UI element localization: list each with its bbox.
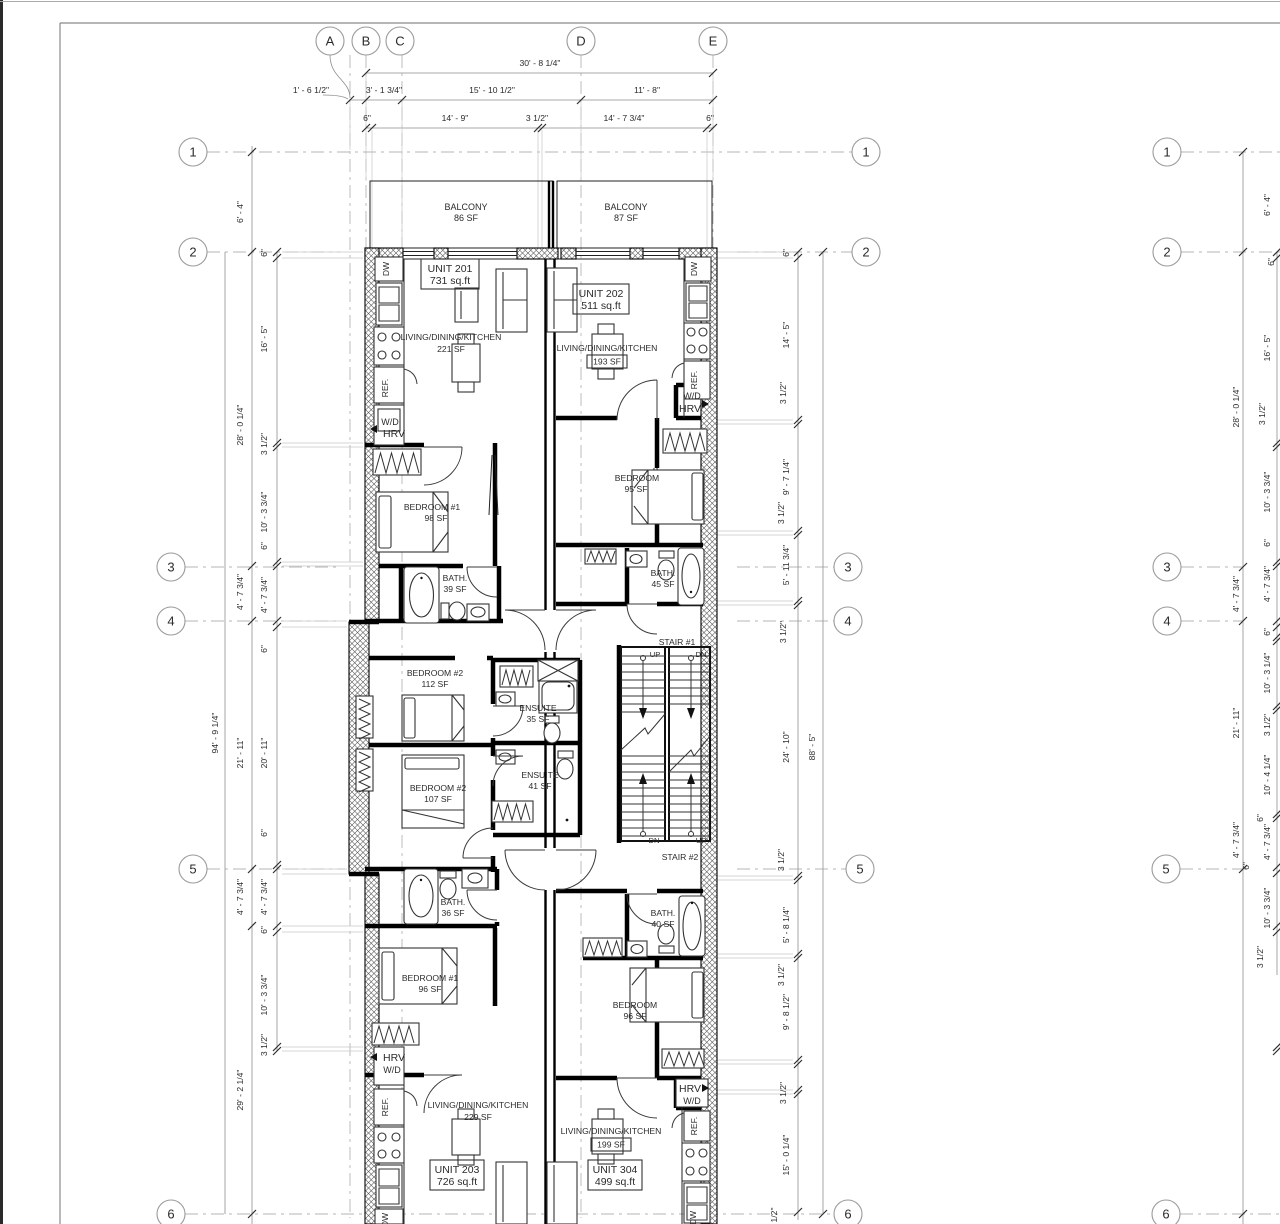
chair	[598, 1154, 614, 1164]
dim-label: 4' - 7 3/4"	[259, 879, 269, 915]
grid-bubble-label: 2	[862, 245, 869, 260]
dim-label: 6"	[259, 926, 269, 934]
balcony-divider-wall	[549, 181, 553, 248]
hrv-label: HRV	[383, 428, 405, 440]
room-area: 39 SF	[444, 584, 467, 594]
dishwasher-label: DW	[381, 261, 391, 276]
unit-area: 511 sq.ft	[581, 300, 621, 312]
dim-label: 3' - 1 3/4"	[366, 85, 402, 95]
dim-label: 20' - 11"	[259, 738, 269, 769]
dim-label: 24' - 10"	[781, 731, 791, 762]
grid-bubble-label: 3	[844, 560, 851, 575]
wall-pier	[434, 248, 448, 259]
room-area: 40 SF	[652, 919, 675, 929]
dishwasher-label: DW	[688, 1210, 698, 1224]
dining-table	[452, 1119, 480, 1155]
toilet-tank	[441, 603, 449, 619]
grid-bubble-label: 1	[189, 145, 196, 160]
room-area: 36 SF	[442, 908, 465, 918]
room-name: BATH.	[441, 897, 466, 907]
room-area: 221 SF	[437, 344, 465, 354]
unit-area: 726 sq.ft	[437, 1176, 477, 1188]
drain	[420, 879, 422, 881]
vanity-sink	[627, 941, 647, 957]
grid-bubble-label: 2	[189, 245, 196, 260]
room-area: 229 SF	[464, 1112, 492, 1122]
unit-name: UNIT 201	[428, 263, 473, 275]
dim-label: 6"	[259, 645, 269, 653]
dimension-labels-top: 30' - 8 1/4" 1' - 6 1/2" 3' - 1 3/4" 15'…	[293, 58, 714, 123]
dim-label: 6"	[706, 113, 714, 123]
dim-label: 6"	[1262, 628, 1272, 636]
room-name: LIVING/DINING/KITCHEN	[557, 343, 658, 353]
room-area: 107 SF	[424, 794, 452, 804]
room-name: LIVING/DINING/KITCHEN	[561, 1126, 662, 1136]
grid-bubble-label: 5	[1162, 862, 1169, 877]
unit-area: 731 sq.ft	[430, 275, 470, 287]
grid-bubble-label: D	[576, 34, 585, 49]
grid-bubble-label: E	[709, 34, 718, 49]
dim-label: 5' - 11 3/4"	[781, 545, 791, 585]
toilet-tank	[440, 871, 456, 878]
dim-label: 14' - 7 3/4"	[603, 113, 644, 123]
room-name: BEDROOM #2	[410, 783, 467, 793]
dim-label: 3 1/2"	[259, 1034, 269, 1056]
refrigerator-label: REF.	[689, 371, 699, 390]
room-name: ENSUITE	[519, 703, 557, 713]
dim-label: 6' - 4"	[1262, 194, 1272, 216]
dim-label: 15' - 0 1/4"	[781, 1134, 791, 1175]
unit-name: UNIT 202	[579, 288, 624, 300]
refrigerator-label: REF.	[689, 1117, 699, 1136]
kitchen-202: DW REF.	[684, 257, 711, 399]
dim-label: 28' - 0 1/4"	[1231, 386, 1241, 427]
dim-label: 16' - 5"	[259, 326, 269, 353]
room-name: LIVING/DINING/KITCHEN	[428, 1100, 529, 1110]
unit-area: 499 sq.ft	[595, 1176, 635, 1188]
stair-up-label: UP	[650, 650, 661, 659]
dim-label: 3 1/2"	[1262, 714, 1272, 736]
kitchen-sink	[376, 283, 402, 325]
dim-label: 29' - 2 1/4"	[235, 1069, 245, 1110]
kitchen-sink	[686, 283, 710, 321]
unit-name: UNIT 203	[435, 1164, 480, 1176]
dim-label: 4' - 7 3/4"	[1231, 822, 1241, 858]
grid-bubble-label: 5	[189, 862, 196, 877]
stair-label: STAIR #1	[659, 637, 696, 647]
dishwasher-label: DW	[689, 261, 699, 276]
dim-label: 6"	[259, 829, 269, 837]
dim-label: 6"	[259, 249, 269, 257]
room-name: BATH.	[443, 573, 468, 583]
toilet-bowl	[544, 723, 560, 743]
balconies	[370, 181, 712, 248]
dim-label: 4' - 7 3/4"	[1262, 824, 1272, 860]
room-name: BEDROOM #2	[407, 668, 464, 678]
grid-bubble-label: 1	[862, 145, 869, 160]
dim-label: 1' - 6 1/2"	[293, 85, 329, 95]
wall-pier	[561, 248, 576, 259]
dim-label: 3 1/2"	[776, 849, 786, 871]
unit-name: UNIT 304	[593, 1164, 638, 1176]
dimension-labels-far-right: 28' - 0 1/4" 4' - 7 3/4" 21' - 11" 4' - …	[1231, 194, 1276, 968]
stair-up-label: UP	[696, 836, 707, 845]
dim-label: 14' - 9"	[442, 113, 469, 123]
dim-label: 6"	[363, 113, 371, 123]
stair-label: STAIR #2	[662, 852, 699, 862]
room-name: BEDROOM	[613, 1000, 657, 1010]
dim-label: 4' - 7 3/4"	[235, 574, 245, 610]
sheet-border	[0, 0, 1280, 1224]
room-name: BEDROOM #1	[404, 502, 461, 512]
room-area: 95 SF	[625, 484, 648, 494]
arrow-head	[687, 708, 695, 719]
dim-label: 10' - 3 3/4"	[259, 974, 269, 1015]
room-area: 87 SF	[614, 213, 639, 223]
dim-label: 10' - 3 3/4"	[1262, 471, 1272, 512]
stair-direction-arrows	[639, 656, 695, 837]
room-name: BATH.	[651, 908, 676, 918]
dim-label: 6"	[781, 249, 791, 257]
hrv-label: HRV	[679, 403, 701, 415]
stove	[374, 327, 404, 365]
toilet-tank	[659, 946, 674, 953]
grid-bubble-label: 1	[1163, 145, 1170, 160]
grid-bubble-label: B	[362, 34, 371, 49]
room-name: BATH.	[651, 568, 676, 578]
left-exterior-wall-bay	[349, 622, 369, 874]
refrigerator-label: REF.	[380, 1098, 390, 1117]
grid-bubble-label: A	[326, 34, 335, 49]
wall-pier	[517, 248, 558, 259]
laundry-label: W/D	[683, 391, 701, 401]
dim-label: 3 1/2"	[259, 433, 269, 455]
dim-label: 4' - 7 3/4"	[1231, 576, 1241, 612]
dim-label: 21' - 11"	[1231, 708, 1241, 739]
laundry-label: W/D	[383, 1065, 401, 1075]
toilet-bowl	[440, 879, 456, 899]
stair-dn-label: DN	[649, 836, 660, 845]
dim-label: 10' - 3 1/4"	[1262, 652, 1272, 693]
dim-label: 4' - 7 3/4"	[1262, 566, 1272, 602]
dim-label: 3 1/2"	[778, 1082, 788, 1104]
room-area: 35 SF	[527, 714, 550, 724]
dim-label: 4' - 7 3/4"	[259, 577, 269, 613]
dim-label: 10' - 4 1/4"	[1262, 754, 1272, 795]
dim-label: 28' - 0 1/4"	[235, 404, 245, 445]
stair-dn-label: DN	[696, 650, 707, 659]
dim-label: 11' - 8"	[634, 85, 660, 95]
dim-label: 10' - 3 3/4"	[259, 491, 269, 532]
dim-label: 1/2"	[769, 1208, 779, 1223]
hrv-label: HRV	[679, 1083, 701, 1095]
dim-label: 6"	[1262, 539, 1272, 547]
dim-label: 10' - 3 3/4"	[1262, 887, 1272, 928]
grid-bubble-label: 6	[844, 1207, 851, 1222]
room-name: BALCONY	[604, 202, 647, 212]
dim-label: 3 1/2"	[1255, 946, 1265, 968]
viewport-edge-left	[0, 0, 3, 1224]
room-area: 41 SF	[529, 781, 552, 791]
dishwasher-label: DW	[380, 1212, 390, 1224]
chair	[598, 1109, 614, 1119]
stove	[374, 1127, 404, 1163]
toilet-bowl	[557, 759, 573, 779]
drain	[566, 819, 569, 822]
grid-bubble-label: 3	[167, 560, 174, 575]
room-name: BEDROOM #1	[402, 973, 459, 983]
dim-label: 30' - 8 1/4"	[519, 58, 560, 68]
wall-pier	[630, 248, 643, 259]
vanity-sink	[462, 869, 488, 888]
room-name: BALCONY	[444, 202, 487, 212]
room-area: 193 SF	[593, 357, 621, 367]
sofa	[547, 1162, 577, 1224]
dim-ticks	[248, 69, 1280, 1218]
drain	[568, 685, 571, 688]
dim-label: 21' - 11"	[235, 738, 245, 769]
grid-bubble-label: 2	[1163, 245, 1170, 260]
chair	[458, 382, 474, 392]
dim-label: 88' - 5"	[807, 734, 817, 761]
toilet-tank	[558, 751, 573, 758]
refrigerator-label: REF.	[380, 379, 390, 398]
dim-label: 6"	[1266, 258, 1276, 266]
hrv-label: HRV	[383, 1052, 405, 1064]
dim-label: 4' - 7 3/4"	[235, 879, 245, 915]
armchair	[455, 288, 478, 322]
dim-label: 6"	[259, 542, 269, 550]
dim-label: 15' - 10 1/2"	[469, 85, 515, 95]
bed	[402, 695, 464, 741]
sofa	[496, 1162, 527, 1224]
grid-bubble-label: 4	[167, 614, 174, 629]
dim-label: 14' - 5"	[781, 322, 791, 349]
room-name: LIVING/DINING/KITCHEN	[401, 332, 502, 342]
room-area: 86 SF	[454, 213, 479, 223]
dim-label: 94' - 9 1/4"	[210, 712, 220, 753]
room-area: 96 SF	[624, 1011, 647, 1021]
room-area: 45 SF	[652, 579, 675, 589]
grid-bubble-label: 6	[167, 1207, 174, 1222]
grid-bubble-label: 6	[1162, 1207, 1169, 1222]
dim-label: 6"	[1255, 814, 1265, 822]
room-name: BEDROOM	[615, 473, 659, 483]
dim-label: 6"	[1241, 862, 1251, 870]
grid-bubbles: A B C D E 1 2 3 4 5 6 1 2 3 4 5 6 1	[157, 27, 1181, 1224]
arrow-head	[639, 708, 647, 719]
stove	[682, 1143, 710, 1181]
dim-label: 6' - 4"	[235, 201, 245, 223]
room-name: ENSUITE	[521, 770, 559, 780]
floor-plan-sheet: 30' - 8 1/4" 1' - 6 1/2" 3' - 1 3/4" 15'…	[0, 0, 1280, 1224]
toilet-bowl	[449, 602, 465, 620]
drain	[691, 902, 693, 904]
arrow-head	[639, 773, 647, 784]
vanity-sink	[626, 551, 647, 567]
grid-bubble-label: 4	[1163, 614, 1170, 629]
dim-label: 9' - 8 1/2"	[781, 994, 791, 1030]
grid-bubble-label: 5	[856, 862, 863, 877]
dim-label: 3 1/2"	[778, 382, 788, 404]
bed-bedroom2-112	[402, 695, 464, 741]
grid-bubble-label: 3	[1163, 560, 1170, 575]
stair-stringers	[665, 647, 669, 841]
stairs	[621, 647, 710, 841]
laundry-label: W/D	[683, 1096, 701, 1106]
room-area: 96 SF	[419, 984, 442, 994]
grid-bubble-label: C	[395, 34, 404, 49]
chair	[598, 324, 614, 334]
dim-label: 3 1/2"	[526, 113, 548, 123]
dimension-labels-right: 88' - 5" 6" 14' - 5" 3 1/2" 9' - 7 1/4" …	[769, 249, 817, 1222]
room-area: 112 SF	[421, 679, 448, 689]
dimension-labels-left: 94' - 9 1/4" 6' - 4" 28' - 0 1/4" 4' - 7…	[210, 201, 269, 1110]
drain	[690, 591, 692, 593]
dim-label: 3 1/2"	[776, 964, 786, 986]
laundry-label: W/D	[381, 417, 399, 427]
drain	[420, 577, 422, 579]
dim-label: 3 1/2"	[1257, 403, 1267, 425]
dim-label: 3 1/2"	[776, 502, 786, 524]
room-area: 199 SF	[597, 1140, 625, 1150]
room-area: 98 SF	[425, 513, 448, 523]
toilet-tank	[659, 551, 674, 558]
dim-label: 3 1/2"	[778, 621, 788, 643]
closet	[662, 1049, 704, 1068]
dim-label: 5' - 8 1/4"	[781, 907, 791, 943]
stove	[684, 323, 710, 359]
arrow-head	[687, 773, 695, 784]
grid-bubble-label: 4	[844, 614, 851, 629]
dim-label: 9' - 7 1/4"	[781, 459, 791, 495]
dim-label: 16' - 5"	[1262, 335, 1272, 362]
chair	[598, 369, 614, 379]
linen-cabinet	[538, 660, 578, 681]
